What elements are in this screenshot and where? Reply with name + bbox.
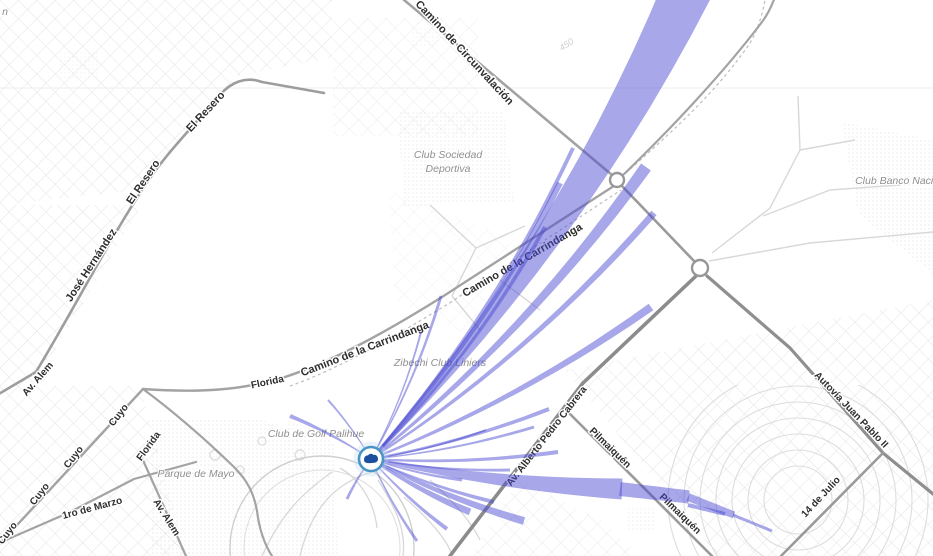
- area-label: Club Sociedad: [414, 149, 483, 161]
- street-label: Florida: [250, 374, 285, 392]
- road-roundabout-connector: [622, 186, 694, 261]
- area-label: Parque de Mayo: [157, 468, 234, 480]
- area-label: Club de Golf Palihue: [268, 428, 364, 440]
- map-viewport: Camino de CircunvalaciónEl ReseroEl Rese…: [0, 0, 933, 556]
- map-canvas[interactable]: Camino de CircunvalaciónEl ReseroEl Rese…: [0, 0, 933, 556]
- street-label: Av. Alberto Pedro Cabrera: [505, 384, 590, 488]
- contour-label: 450: [557, 36, 575, 53]
- street-label: Camino de la Carrindanga: [299, 319, 431, 379]
- area-label: Club Banco Nación: [855, 175, 933, 187]
- origin-marker[interactable]: [356, 444, 386, 474]
- area-label: Deportiva: [426, 163, 471, 175]
- roundabout-2: [692, 260, 708, 276]
- area-label: n: [2, 6, 8, 18]
- roundabout-1: [610, 173, 624, 187]
